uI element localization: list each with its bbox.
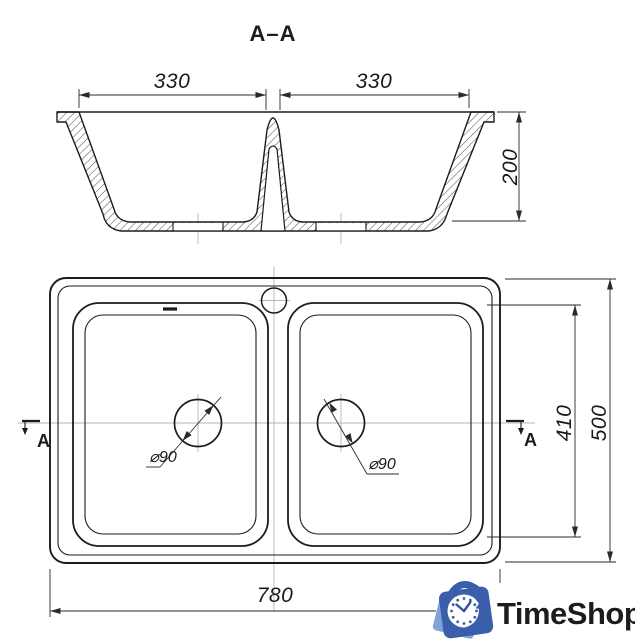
plan-view: ⌀90 ⌀90 A A 410 <box>18 266 616 617</box>
section-marker-left-label: A <box>37 431 50 451</box>
right-drain-diameter-label: ⌀90 <box>368 456 396 473</box>
right-drain-boss <box>316 222 366 231</box>
dimension-410-label: 410 <box>553 405 576 442</box>
left-drain-callout: ⌀90 <box>146 397 221 467</box>
sink-drawing-canvas: A–A 330 <box>0 0 635 640</box>
left-drain-diameter-label: ⌀90 <box>149 449 177 466</box>
section-marker-left: A <box>22 421 50 451</box>
left-drain-boss <box>173 222 223 231</box>
left-bowl-top-edge <box>73 303 268 546</box>
section-arrow-icon <box>22 428 28 435</box>
right-bowl-bottom-edge <box>300 315 471 534</box>
logo-text: TimeShop <box>497 596 635 631</box>
left-bowl-bottom-edge <box>85 315 256 534</box>
dimension-780-label: 780 <box>257 584 294 607</box>
dimension-330-left-label: 330 <box>154 70 191 93</box>
timeshop-logo: TimeShop <box>432 581 635 640</box>
section-view: 330 330 200 <box>57 70 526 244</box>
dimension-200-label: 200 <box>499 149 522 187</box>
technical-drawing-page: A–A 330 <box>0 0 635 640</box>
section-marker-right-label: A <box>524 430 537 450</box>
dimension-500-label: 500 <box>588 405 611 442</box>
section-title: A–A <box>249 21 296 46</box>
section-marker-right: A <box>506 421 537 450</box>
sink-outer-edge <box>50 278 500 563</box>
sink-rim-inner-edge <box>58 286 492 555</box>
dimension-330-right-label: 330 <box>356 70 393 93</box>
